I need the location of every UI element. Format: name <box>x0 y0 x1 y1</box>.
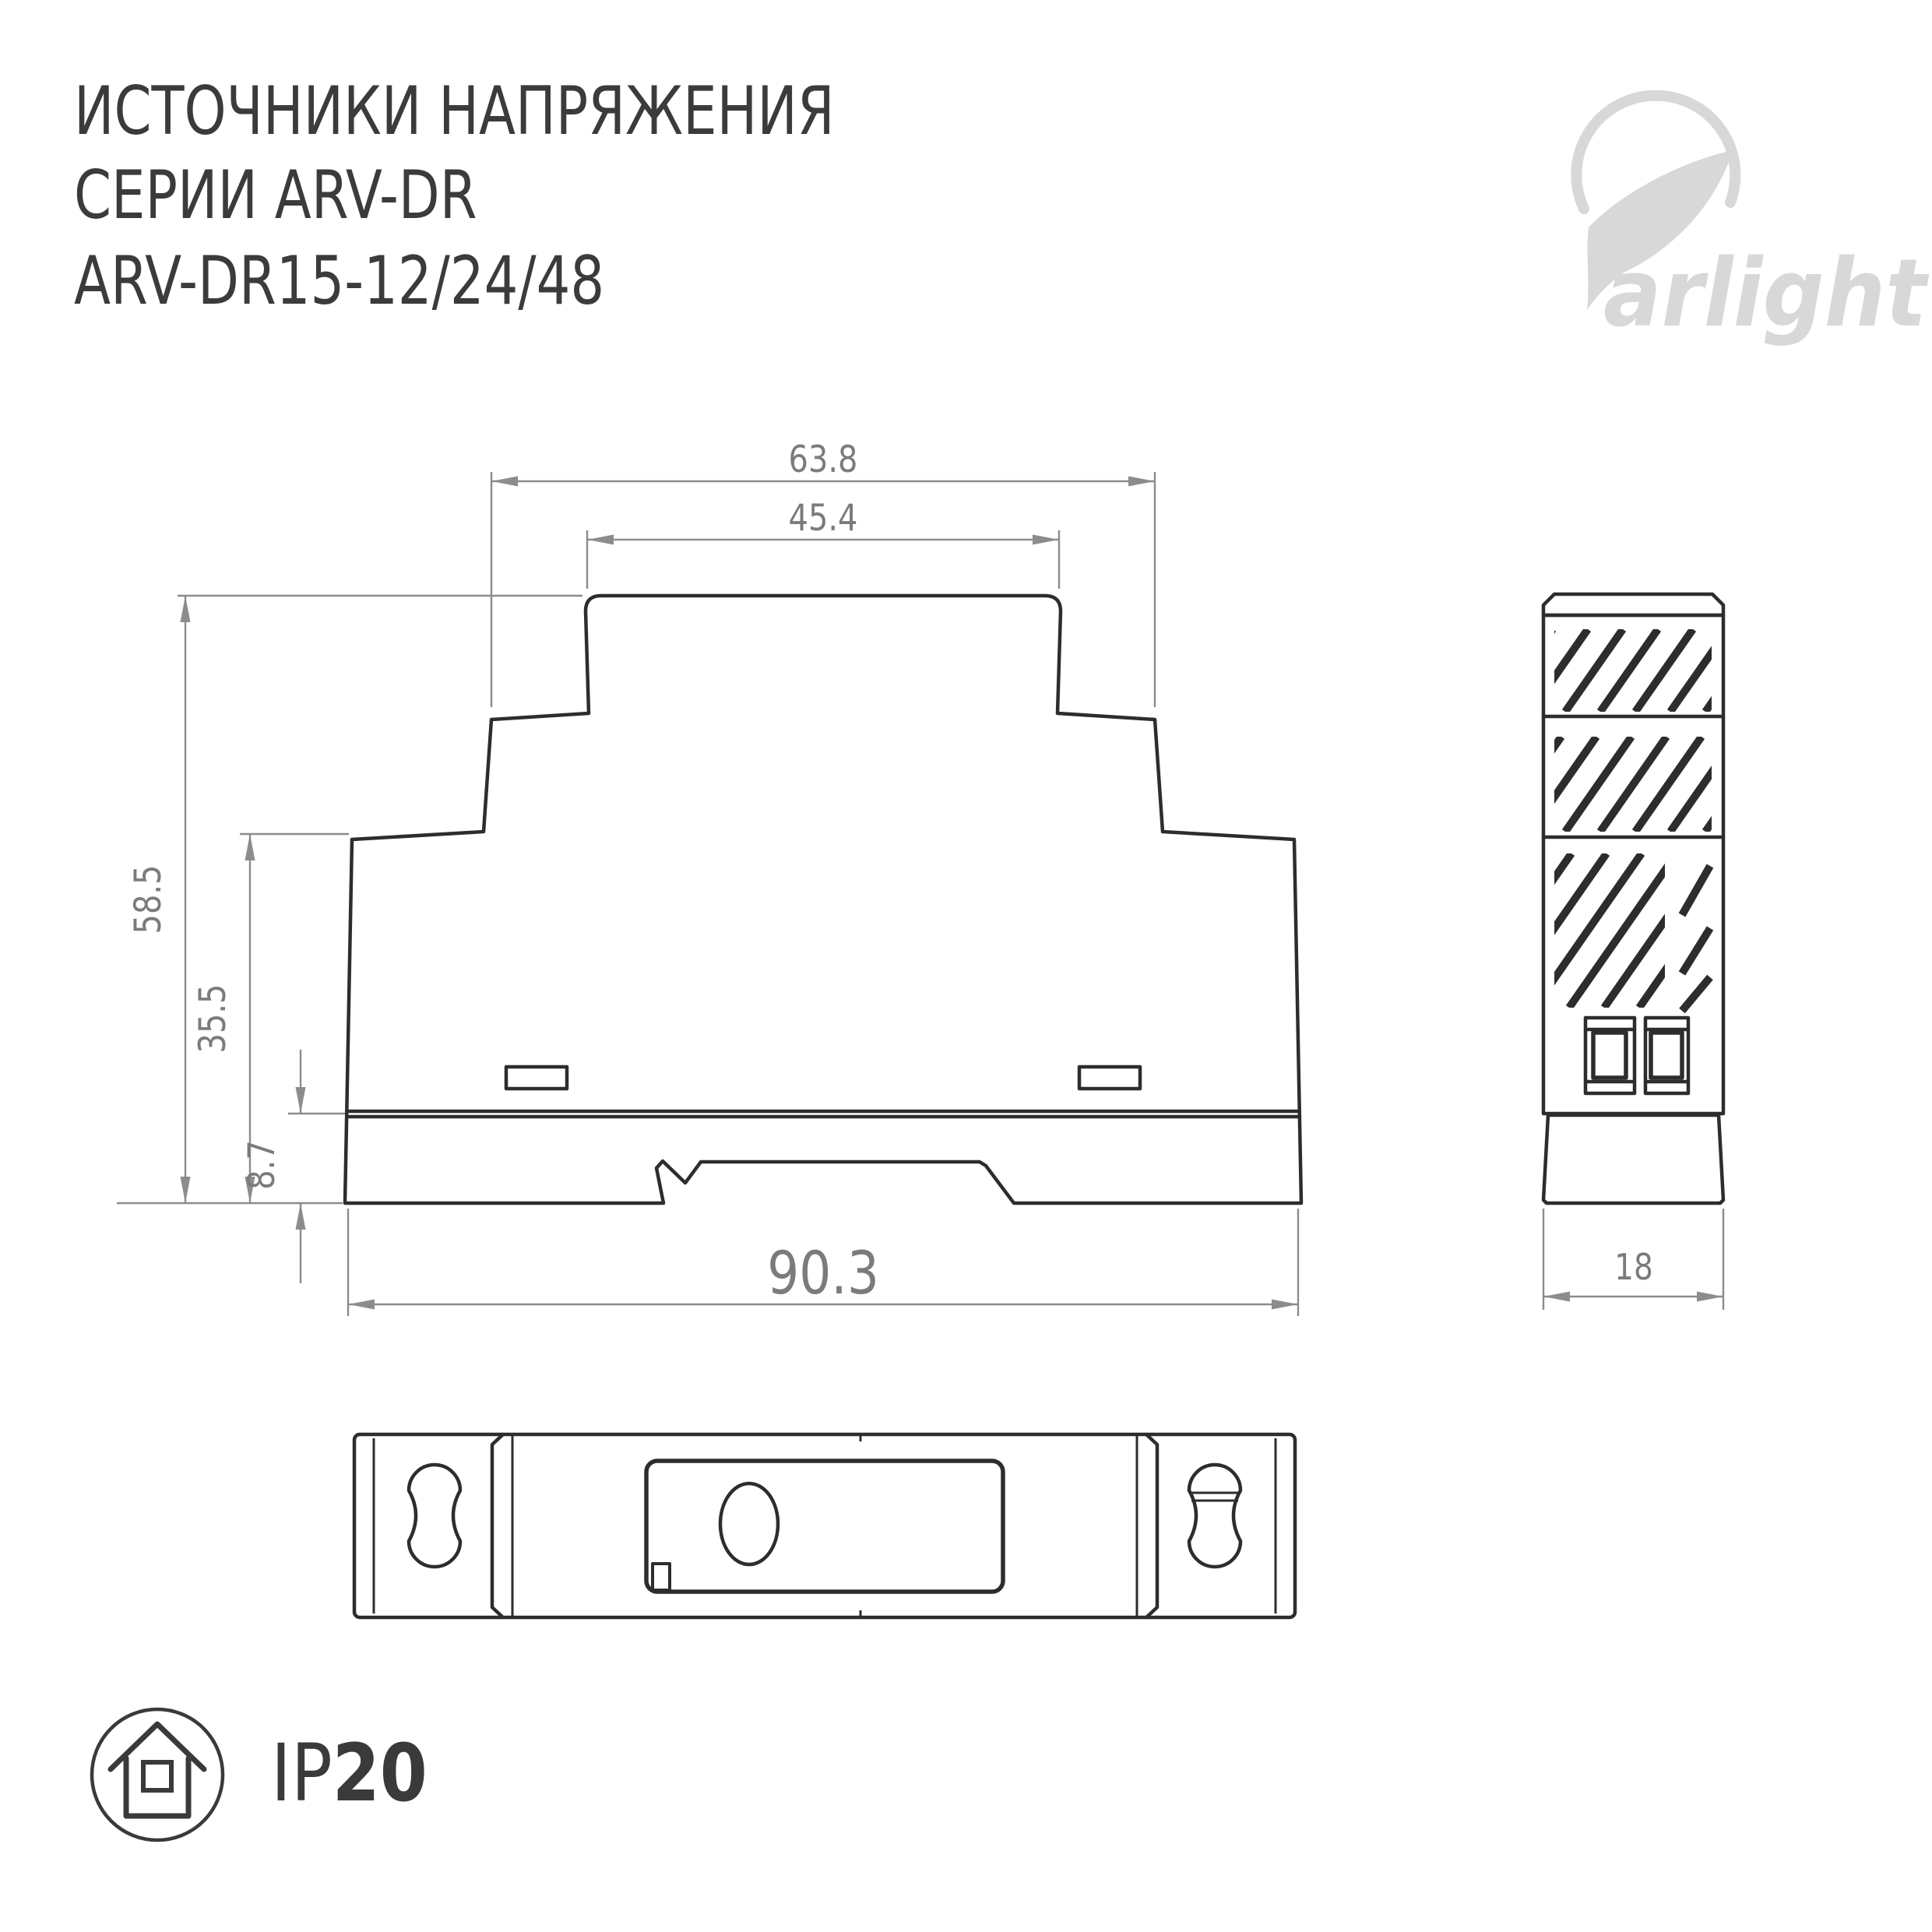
dim-label-45-4: 45.4 <box>789 498 858 540</box>
vent-marks-right <box>1682 866 1710 1011</box>
dim-label-8-7: 8.7 <box>241 1140 283 1190</box>
datasheet-page: 63.8 45.4 58.5 35.5 <box>0 0 1932 1932</box>
front-slot-left <box>506 1067 567 1089</box>
house-icon <box>92 1709 223 1840</box>
ip-rating: IP20 <box>271 1730 428 1818</box>
terminal-block-right <box>1645 1018 1688 1093</box>
side-view <box>1464 594 1772 1203</box>
ip-rating-value: 20 <box>333 1727 428 1820</box>
page-title-line-2: СЕРИИ ARV-DR <box>74 162 477 229</box>
dim-label-63-8: 63.8 <box>789 439 858 481</box>
front-slot-right <box>1079 1067 1140 1089</box>
bottom-view <box>354 1434 1295 1617</box>
front-view <box>345 596 1301 1203</box>
side-top-cap <box>1543 594 1723 615</box>
dim-label-18: 18 <box>1614 1247 1653 1289</box>
page-title-line-1: ИСТОЧНИКИ НАПРЯЖЕНИЯ <box>74 78 835 145</box>
ip-rating-prefix: IP <box>271 1727 333 1820</box>
dim-label-35-5: 35.5 <box>192 984 234 1054</box>
side-din-foot <box>1543 1115 1723 1203</box>
dim-total-width: 90.3 <box>348 1209 1298 1316</box>
arlight-logo-text: arlight <box>1546 248 1927 341</box>
dim-depth: 18 <box>1543 1209 1723 1310</box>
vent-group-middle <box>1495 737 1772 832</box>
terminal-block-left <box>1585 1018 1635 1093</box>
page-title-line-3: ARV-DR15-12/24/48 <box>74 248 604 315</box>
dim-label-90-3: 90.3 <box>767 1239 879 1307</box>
dim-inner-top-width: 45.4 <box>587 498 1059 589</box>
dim-rail-height: 8.7 <box>241 1050 345 1283</box>
dim-label-58-5: 58.5 <box>128 865 170 934</box>
